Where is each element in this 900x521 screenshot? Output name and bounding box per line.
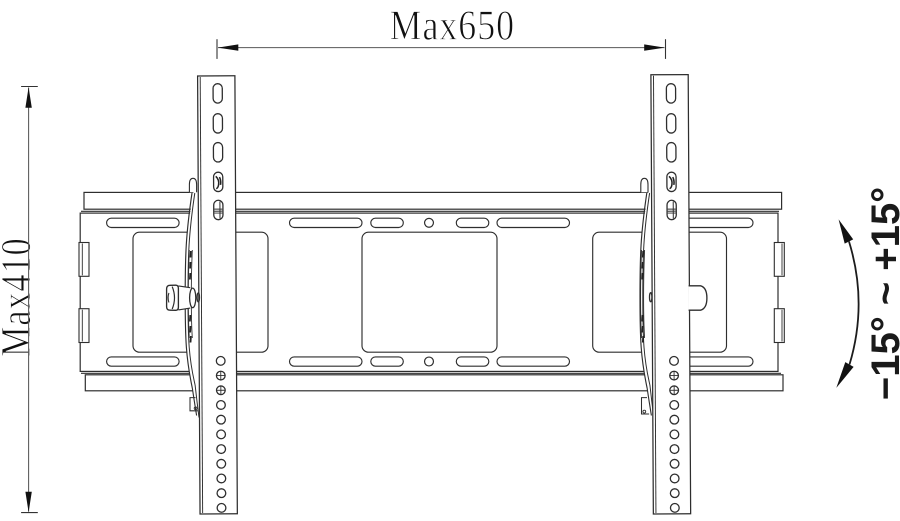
svg-text:−15° ~ +15°: −15° ~ +15° — [863, 187, 900, 400]
svg-text:Max650: Max650 — [390, 4, 515, 50]
svg-text:Max410: Max410 — [0, 237, 40, 357]
